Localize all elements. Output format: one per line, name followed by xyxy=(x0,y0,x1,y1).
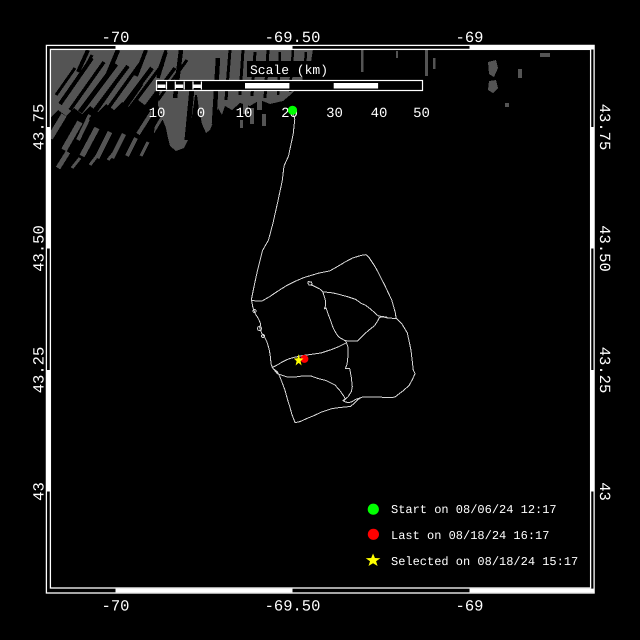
svg-text:-70: -70 xyxy=(102,29,130,47)
svg-text:50: 50 xyxy=(413,106,430,122)
svg-text:-69.50: -69.50 xyxy=(265,598,321,616)
svg-text:0: 0 xyxy=(197,106,205,122)
svg-text:43.50: 43.50 xyxy=(595,225,613,272)
svg-text:-69: -69 xyxy=(456,598,484,616)
svg-text:-69: -69 xyxy=(456,29,484,47)
svg-text:Selected on 08/18/24 15:17: Selected on 08/18/24 15:17 xyxy=(391,555,578,569)
svg-text:30: 30 xyxy=(326,106,343,122)
svg-text:43: 43 xyxy=(31,482,49,501)
svg-text:Last on 08/18/24 16:17: Last on 08/18/24 16:17 xyxy=(391,529,549,543)
svg-text:Start on 08/06/24 12:17: Start on 08/06/24 12:17 xyxy=(391,503,557,517)
svg-text:43.50: 43.50 xyxy=(31,225,49,272)
svg-text:43.75: 43.75 xyxy=(595,104,613,151)
svg-text:10: 10 xyxy=(149,106,166,122)
svg-text:43.75: 43.75 xyxy=(31,104,49,151)
svg-text:Scale (km): Scale (km) xyxy=(250,63,328,78)
svg-text:43: 43 xyxy=(595,482,613,501)
svg-text:-69.50: -69.50 xyxy=(265,29,321,47)
svg-text:40: 40 xyxy=(371,106,388,122)
svg-text:10: 10 xyxy=(236,106,253,122)
svg-text:-70: -70 xyxy=(102,598,130,616)
svg-text:43.25: 43.25 xyxy=(31,347,49,394)
svg-text:43.25: 43.25 xyxy=(595,347,613,394)
